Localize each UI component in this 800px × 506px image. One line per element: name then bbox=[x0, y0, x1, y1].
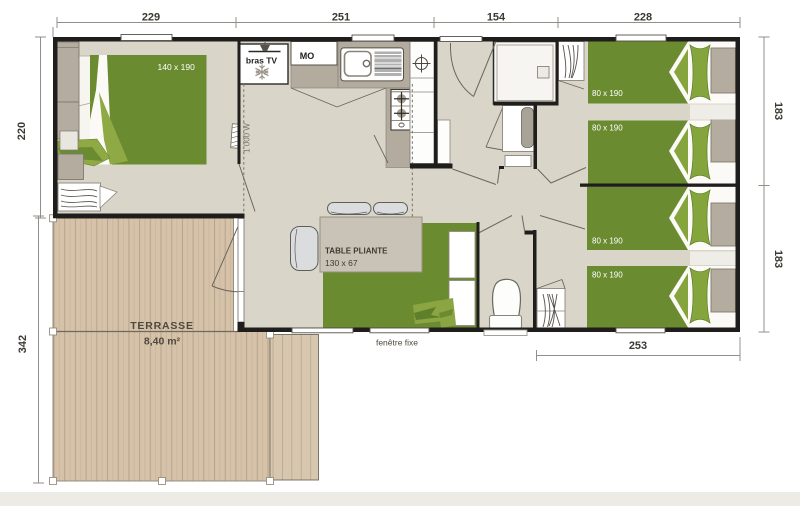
svg-text:140 x 190: 140 x 190 bbox=[158, 62, 196, 72]
svg-text:342: 342 bbox=[17, 335, 29, 353]
svg-text:183: 183 bbox=[772, 102, 784, 120]
svg-text:80 x 190: 80 x 190 bbox=[592, 237, 623, 246]
svg-text:253: 253 bbox=[629, 340, 647, 352]
svg-text:fenêtre fixe: fenêtre fixe bbox=[376, 338, 418, 348]
svg-text:MO: MO bbox=[300, 51, 315, 61]
svg-text:8,40 m²: 8,40 m² bbox=[144, 336, 181, 348]
svg-text:TERRASSE: TERRASSE bbox=[130, 320, 194, 332]
svg-text:80 x 190: 80 x 190 bbox=[592, 89, 623, 98]
svg-text:bras TV: bras TV bbox=[246, 56, 278, 66]
svg-text:251: 251 bbox=[332, 12, 350, 24]
svg-text:80 x 190: 80 x 190 bbox=[592, 124, 623, 133]
svg-text:183: 183 bbox=[772, 250, 784, 268]
svg-text:229: 229 bbox=[142, 12, 160, 24]
svg-text:80 x 190: 80 x 190 bbox=[592, 271, 623, 280]
svg-text:TABLE PLIANTE: TABLE PLIANTE bbox=[325, 247, 388, 256]
svg-text:130 x 67: 130 x 67 bbox=[325, 258, 358, 268]
svg-text:220: 220 bbox=[16, 122, 28, 140]
svg-text:154: 154 bbox=[487, 12, 506, 24]
svg-text:228: 228 bbox=[634, 12, 652, 24]
